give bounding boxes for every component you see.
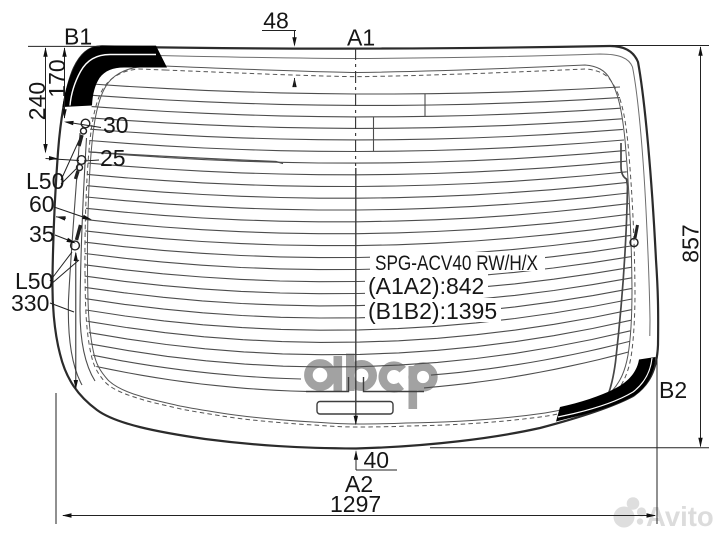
svg-text:1297: 1297 (330, 491, 381, 517)
svg-text:60: 60 (29, 191, 55, 217)
svg-text:Avito: Avito (646, 501, 714, 532)
svg-text:30: 30 (103, 112, 129, 138)
svg-text:A1: A1 (347, 25, 375, 51)
svg-text:330: 330 (11, 290, 49, 316)
svg-text:25: 25 (100, 145, 126, 171)
svg-text:(B1B2):1395: (B1B2):1395 (368, 298, 497, 324)
svg-text:170: 170 (44, 59, 70, 97)
svg-text:48: 48 (263, 8, 289, 34)
svg-text:SPG-ACV40 RW/H/X: SPG-ACV40 RW/H/X (375, 252, 538, 275)
svg-text:35: 35 (29, 221, 55, 247)
svg-text:(A1A2):842: (A1A2):842 (368, 273, 484, 299)
svg-text:857: 857 (678, 224, 704, 262)
svg-text:40: 40 (364, 447, 390, 473)
svg-text:B2: B2 (659, 377, 687, 403)
svg-text:B1: B1 (64, 24, 92, 50)
